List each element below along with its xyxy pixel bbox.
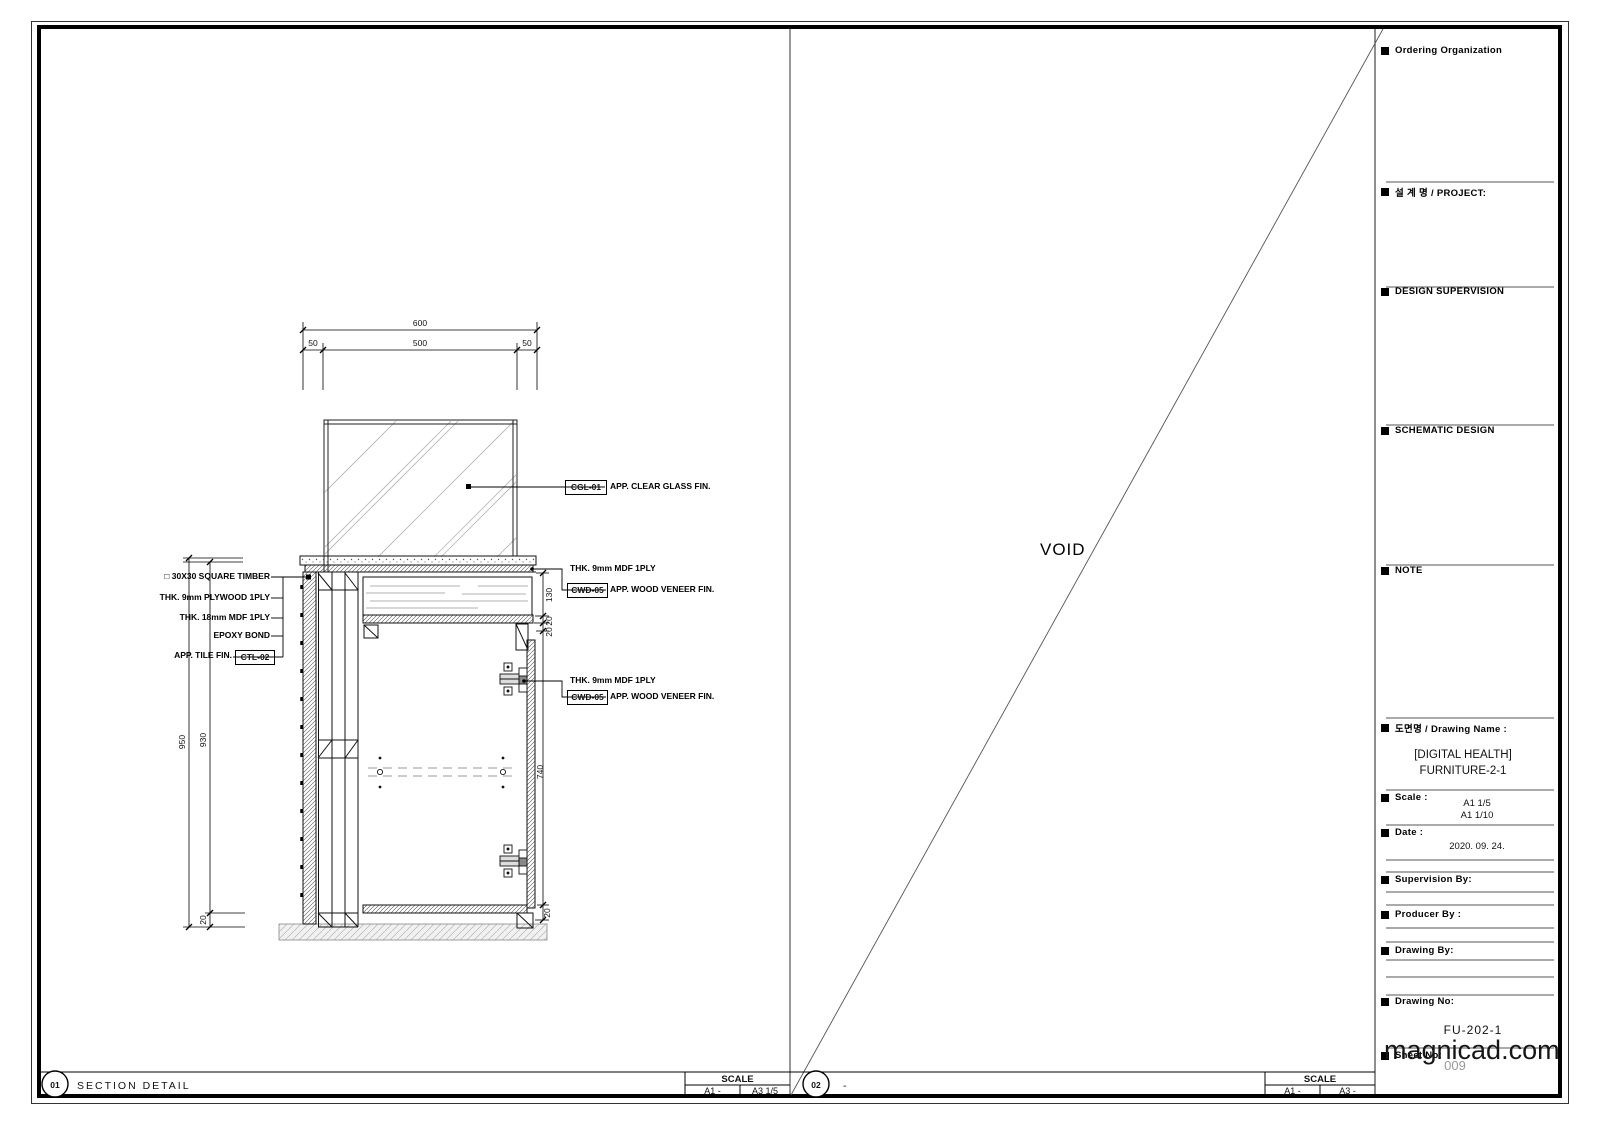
dim-upper: 130 xyxy=(544,588,554,602)
section-marker xyxy=(1381,829,1389,837)
section-marker xyxy=(1381,876,1389,884)
dim-top-total: 600 xyxy=(413,318,427,328)
void-diagonal xyxy=(791,29,1383,1095)
cabinet-section xyxy=(279,556,547,940)
label-mdf9-door: THK. 9mm MDF 1PLY xyxy=(570,675,656,685)
scale-value-1: A1 1/5 xyxy=(1437,798,1517,809)
drawing-sheet: 600 50 500 50 950 930 20 130 20 20 740 2… xyxy=(0,0,1600,1131)
panel1-scale-label: SCALE xyxy=(685,1074,790,1085)
dim-door: 740 xyxy=(535,765,545,779)
titleblock-drawing-by: Drawing By: xyxy=(1381,945,1454,956)
panel2-number: 02 xyxy=(811,1080,821,1090)
label-tile-fin: APP. TILE FIN. xyxy=(112,650,232,660)
titleblock-supervision-by: Supervision By: xyxy=(1381,874,1472,885)
dim-bottom: 20 xyxy=(542,908,552,918)
date-value: 2020. 09. 24. xyxy=(1437,841,1517,852)
titleblock-drawing-no-label: Drawing No: xyxy=(1381,996,1454,1007)
label-veneer-top: APP. WOOD VENEER FIN. xyxy=(610,584,714,594)
tag-cgl-01: CGL-01 xyxy=(565,480,607,495)
section-marker xyxy=(1381,947,1389,955)
dim-height-total: 950 xyxy=(177,735,187,749)
titleblock-producer-by: Producer By : xyxy=(1381,909,1461,920)
titleblock-design-supervision: DESIGN SUPERVISION xyxy=(1381,286,1504,297)
label-mdf9-top: THK. 9mm MDF 1PLY xyxy=(570,563,656,573)
label-veneer-door: APP. WOOD VENEER FIN. xyxy=(610,691,714,701)
section-marker xyxy=(1381,188,1389,196)
section-marker xyxy=(1381,724,1389,732)
label-mdf18: THK. 18mm MDF 1PLY xyxy=(150,612,270,622)
titleblock-scale-label: Scale : xyxy=(1381,792,1428,803)
section-marker xyxy=(1381,47,1389,55)
titleblock-drawing-name-label: 도면명 / Drawing Name : xyxy=(1381,721,1507,735)
section-marker xyxy=(1381,288,1389,296)
dim-height-body: 930 xyxy=(198,733,208,747)
titleblock-project: 설 계 명 / PROJECT: xyxy=(1381,185,1486,199)
page-frame xyxy=(32,22,1569,1104)
panel2-scale-a1: A1 - xyxy=(1265,1086,1320,1096)
hinge-bottom xyxy=(500,845,527,877)
hinge-top xyxy=(500,663,527,695)
titleblock-note: NOTE xyxy=(1381,565,1423,576)
section-marker xyxy=(1381,794,1389,802)
tag-ctl-02: CTL-02 xyxy=(235,650,275,665)
panel2-scale-a3: A3 - xyxy=(1320,1086,1375,1096)
panel2-title: - xyxy=(843,1080,849,1092)
sheet-linework: 600 50 500 50 950 930 20 130 20 20 740 2… xyxy=(0,0,1600,1131)
section-marker xyxy=(1381,998,1389,1006)
panel1-title: SECTION DETAIL xyxy=(77,1080,191,1092)
section-marker xyxy=(1381,427,1389,435)
scale-value-2: A1 1/10 xyxy=(1437,810,1517,821)
watermark: magnicad.com xyxy=(1384,1035,1560,1066)
section-marker xyxy=(1381,567,1389,575)
panel1-scale-a3: A3 1/5 xyxy=(740,1086,790,1096)
dim-gap1: 20 xyxy=(544,616,554,626)
tag-cwd-05-top: CWD-05 xyxy=(567,583,608,598)
dim-top-center: 500 xyxy=(413,338,427,348)
section-marker xyxy=(1381,911,1389,919)
tag-cwd-05-door: CWD-05 xyxy=(567,690,608,705)
titleblock-schematic-design: SCHEMATIC DESIGN xyxy=(1381,425,1495,436)
panel1-scale-a1: A1 - xyxy=(685,1086,740,1096)
label-clear-glass: APP. CLEAR GLASS FIN. xyxy=(610,481,710,491)
panel1-number: 01 xyxy=(50,1080,60,1090)
label-epoxy: EPOXY BOND xyxy=(150,630,270,640)
drawing-name-line2: FURNITURE-2-1 xyxy=(1383,765,1543,777)
titleblock-date-label: Date : xyxy=(1381,827,1423,838)
label-square-timber: □ 30X30 SQUARE TIMBER xyxy=(150,571,270,581)
dim-top-right: 50 xyxy=(522,338,532,348)
dim-base: 20 xyxy=(198,915,208,925)
dimension-lines xyxy=(183,322,549,930)
void-label: VOID xyxy=(1040,540,1086,560)
drawing-name-line1: [DIGITAL HEALTH] xyxy=(1383,749,1543,761)
dim-gap2: 20 xyxy=(544,627,554,637)
label-plywood: THK. 9mm PLYWOOD 1PLY xyxy=(150,592,270,602)
titleblock-ordering-org: Ordering Organization xyxy=(1381,45,1502,56)
dim-top-left: 50 xyxy=(308,338,318,348)
panel2-scale-label: SCALE xyxy=(1265,1074,1375,1085)
